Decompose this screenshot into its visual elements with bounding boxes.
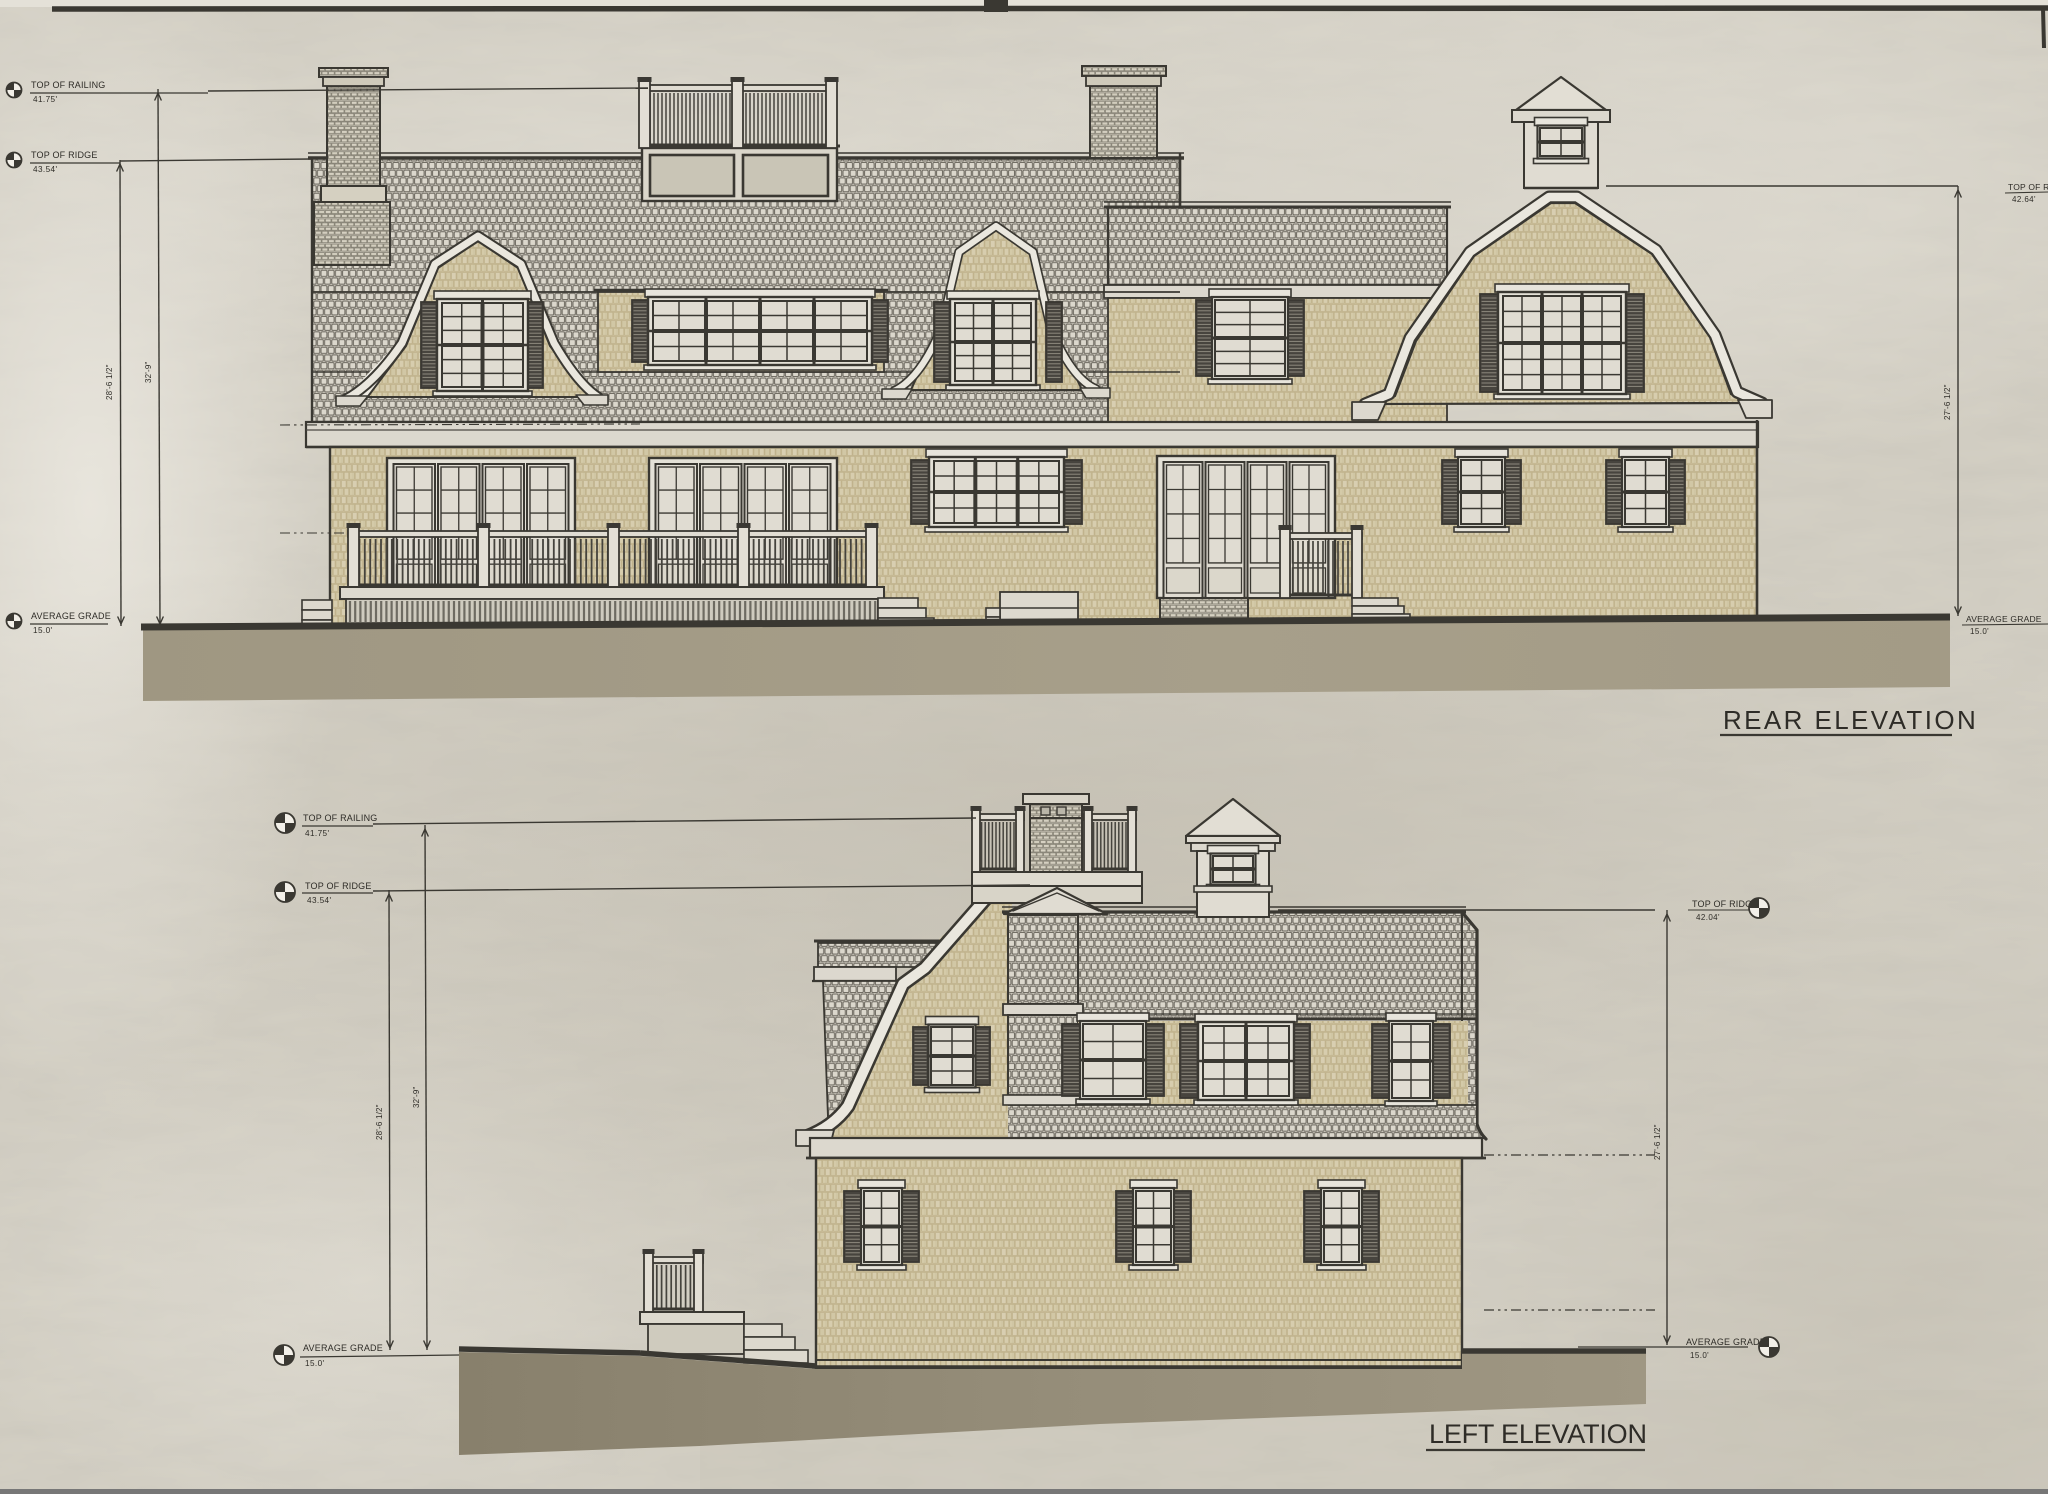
svg-text:42.04': 42.04' bbox=[1696, 913, 1720, 922]
svg-text:AVERAGE GRADE: AVERAGE GRADE bbox=[1686, 1337, 1766, 1347]
svg-text:TOP OF RIDGE: TOP OF RIDGE bbox=[2008, 182, 2048, 192]
svg-text:15.0': 15.0' bbox=[1970, 627, 1989, 636]
svg-text:TOP OF RAILING: TOP OF RAILING bbox=[303, 813, 377, 823]
svg-text:41.75': 41.75' bbox=[33, 95, 57, 104]
svg-text:41.75': 41.75' bbox=[305, 829, 329, 838]
svg-text:43.54': 43.54' bbox=[33, 165, 57, 174]
svg-text:AVERAGE GRADE: AVERAGE GRADE bbox=[1966, 614, 2042, 624]
svg-text:43.54': 43.54' bbox=[307, 896, 331, 905]
svg-text:AVERAGE GRADE: AVERAGE GRADE bbox=[31, 611, 111, 621]
svg-text:TOP OF RIDGE: TOP OF RIDGE bbox=[31, 150, 98, 160]
svg-text:28'-6 1/2": 28'-6 1/2" bbox=[105, 364, 114, 400]
svg-text:TOP OF RIDGE: TOP OF RIDGE bbox=[305, 881, 372, 891]
svg-text:15.0': 15.0' bbox=[33, 626, 53, 635]
svg-text:32'-9": 32'-9" bbox=[412, 1086, 421, 1108]
svg-text:15.0': 15.0' bbox=[305, 1359, 325, 1368]
svg-text:TOP OF RAILING: TOP OF RAILING bbox=[31, 80, 105, 90]
svg-text:32'-9": 32'-9" bbox=[144, 361, 153, 383]
svg-text:AVERAGE GRADE: AVERAGE GRADE bbox=[303, 1343, 383, 1353]
svg-text:27'-6 1/2": 27'-6 1/2" bbox=[1943, 384, 1952, 420]
svg-text:REAR ELEVATION: REAR ELEVATION bbox=[1723, 705, 1978, 735]
svg-text:LEFT ELEVATION: LEFT ELEVATION bbox=[1429, 1419, 1647, 1449]
svg-text:42.64': 42.64' bbox=[2012, 195, 2036, 204]
svg-text:28'-6 1/2": 28'-6 1/2" bbox=[375, 1104, 384, 1140]
svg-text:15.0': 15.0' bbox=[1690, 1351, 1709, 1360]
